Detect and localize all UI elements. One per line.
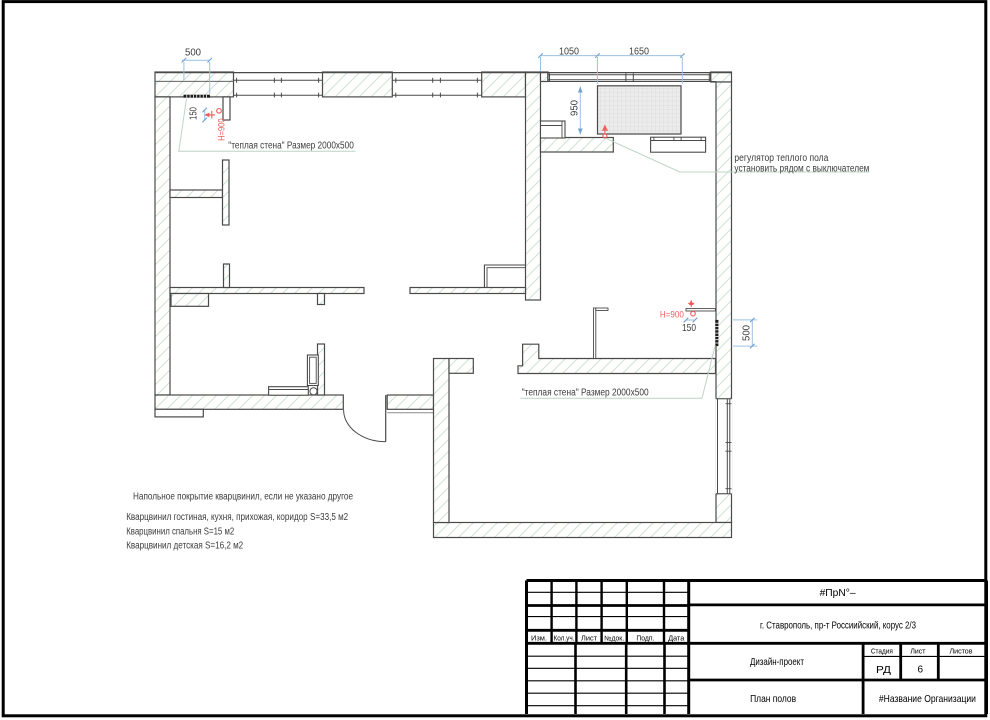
svg-text:1650: 1650 bbox=[629, 46, 649, 58]
svg-text:"теплая стена" Размер 2000х500: "теплая стена" Размер 2000х500 bbox=[228, 141, 354, 152]
svg-text:H=900: H=900 bbox=[660, 310, 684, 321]
svg-text:H=900: H=900 bbox=[217, 118, 228, 141]
svg-text:№док.: №док. bbox=[604, 635, 624, 642]
svg-text:500: 500 bbox=[741, 325, 753, 341]
svg-text:#ПрN°–: #ПрN°– bbox=[820, 587, 856, 599]
svg-text:Дизайн-проект: Дизайн-проект bbox=[750, 656, 804, 668]
svg-text:#Название Организации: #Название Организации bbox=[879, 693, 976, 705]
svg-text:Кварцвинил гостиная, кухня, пр: Кварцвинил гостиная, кухня, прихожая, ко… bbox=[126, 512, 348, 523]
svg-text:Кварцвинил спальня S=15 м2: Кварцвинил спальня S=15 м2 bbox=[126, 526, 234, 537]
svg-text:регулятор теплого пола: регулятор теплого пола bbox=[734, 153, 828, 164]
svg-text:"теплая стена" Размер 2000х500: "теплая стена" Размер 2000х500 bbox=[522, 388, 649, 399]
svg-text:Изм.: Изм. bbox=[531, 635, 547, 642]
svg-text:Кол.уч.: Кол.уч. bbox=[554, 635, 575, 642]
svg-text:500: 500 bbox=[185, 47, 201, 59]
svg-text:150: 150 bbox=[682, 322, 696, 334]
svg-text:Подп.: Подп. bbox=[636, 635, 654, 642]
svg-text:950: 950 bbox=[569, 100, 581, 116]
svg-text:РД: РД bbox=[876, 664, 891, 676]
svg-text:Напольное покрытие кварцвинил,: Напольное покрытие кварцвинил, если не у… bbox=[133, 492, 353, 503]
svg-text:Листов: Листов bbox=[950, 648, 973, 655]
svg-text:Лист: Лист bbox=[910, 648, 926, 655]
svg-text:6: 6 bbox=[918, 664, 924, 675]
svg-text:1050: 1050 bbox=[559, 46, 579, 58]
svg-text:150: 150 bbox=[188, 107, 200, 120]
svg-text:Кварцвинил детская S=16,2 м2: Кварцвинил детская S=16,2 м2 bbox=[126, 541, 243, 552]
svg-text:установить рядом с выключателе: установить рядом с выключателем bbox=[734, 164, 869, 175]
svg-text:Стадия: Стадия bbox=[871, 648, 893, 655]
svg-text:г. Ставрополь, пр-т Россиийски: г. Ставрополь, пр-т Россиийский, корус 2… bbox=[760, 619, 916, 631]
svg-text:План полов: План полов bbox=[750, 693, 796, 705]
svg-text:Лист: Лист bbox=[581, 635, 598, 642]
svg-text:Дата: Дата bbox=[668, 635, 684, 642]
